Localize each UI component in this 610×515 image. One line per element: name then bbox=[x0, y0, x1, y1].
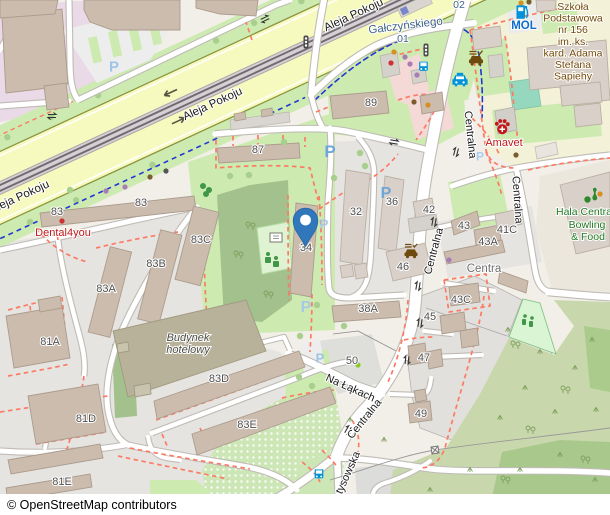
svg-text:P: P bbox=[316, 351, 325, 366]
svg-text:Bowling: Bowling bbox=[569, 219, 606, 231]
svg-text:MOL: MOL bbox=[511, 20, 537, 32]
svg-text:& Food: & Food bbox=[571, 231, 605, 243]
svg-text:83D: 83D bbox=[209, 373, 229, 385]
svg-text:Centra: Centra bbox=[467, 263, 502, 275]
svg-text:42: 42 bbox=[423, 204, 435, 216]
svg-text:45: 45 bbox=[424, 311, 436, 323]
svg-text:P: P bbox=[320, 217, 329, 232]
svg-text:43A: 43A bbox=[478, 236, 498, 248]
svg-text:43C: 43C bbox=[451, 294, 471, 306]
svg-text:83C: 83C bbox=[191, 234, 211, 246]
svg-text:01: 01 bbox=[397, 33, 409, 45]
svg-text:83A: 83A bbox=[96, 283, 116, 295]
svg-text:87: 87 bbox=[252, 144, 264, 156]
svg-text:hotelowy: hotelowy bbox=[166, 344, 211, 356]
svg-text:P: P bbox=[109, 58, 119, 75]
svg-text:83E: 83E bbox=[237, 419, 257, 431]
svg-text:Hala Centra: Hala Centra bbox=[556, 206, 610, 218]
svg-text:Podstawowa: Podstawowa bbox=[543, 13, 603, 25]
svg-text:P: P bbox=[301, 299, 312, 316]
svg-text:47: 47 bbox=[418, 352, 430, 364]
svg-text:43: 43 bbox=[458, 220, 470, 232]
svg-text:83: 83 bbox=[51, 206, 63, 218]
svg-text:50: 50 bbox=[346, 355, 358, 367]
svg-text:im. ks.: im. ks. bbox=[558, 36, 588, 48]
svg-text:Amavet: Amavet bbox=[485, 137, 522, 149]
svg-text:83B: 83B bbox=[146, 258, 166, 270]
svg-text:kard. Adama: kard. Adama bbox=[544, 47, 603, 59]
svg-text:Dental4you: Dental4you bbox=[35, 227, 91, 239]
svg-text:89: 89 bbox=[365, 97, 377, 109]
svg-text:Stefana: Stefana bbox=[555, 59, 591, 71]
svg-text:Budynek: Budynek bbox=[167, 332, 210, 344]
svg-text:83: 83 bbox=[135, 197, 147, 209]
svg-text:© OpenStreetMap contributors: © OpenStreetMap contributors bbox=[7, 498, 177, 512]
svg-text:P: P bbox=[324, 142, 335, 161]
svg-text:36: 36 bbox=[386, 196, 398, 208]
svg-text:Szkoła: Szkoła bbox=[557, 1, 589, 13]
svg-text:32: 32 bbox=[350, 206, 362, 218]
svg-text:Sapiehy: Sapiehy bbox=[554, 71, 593, 83]
svg-text:81A: 81A bbox=[40, 336, 60, 348]
svg-text:02: 02 bbox=[453, 0, 465, 11]
svg-text:81E: 81E bbox=[52, 476, 72, 488]
svg-text:49: 49 bbox=[415, 408, 427, 420]
svg-text:46: 46 bbox=[397, 261, 409, 273]
svg-text:38A: 38A bbox=[358, 303, 378, 315]
svg-text:81D: 81D bbox=[76, 413, 96, 425]
svg-text:41C: 41C bbox=[497, 224, 517, 236]
svg-text:nr 156: nr 156 bbox=[558, 24, 588, 36]
